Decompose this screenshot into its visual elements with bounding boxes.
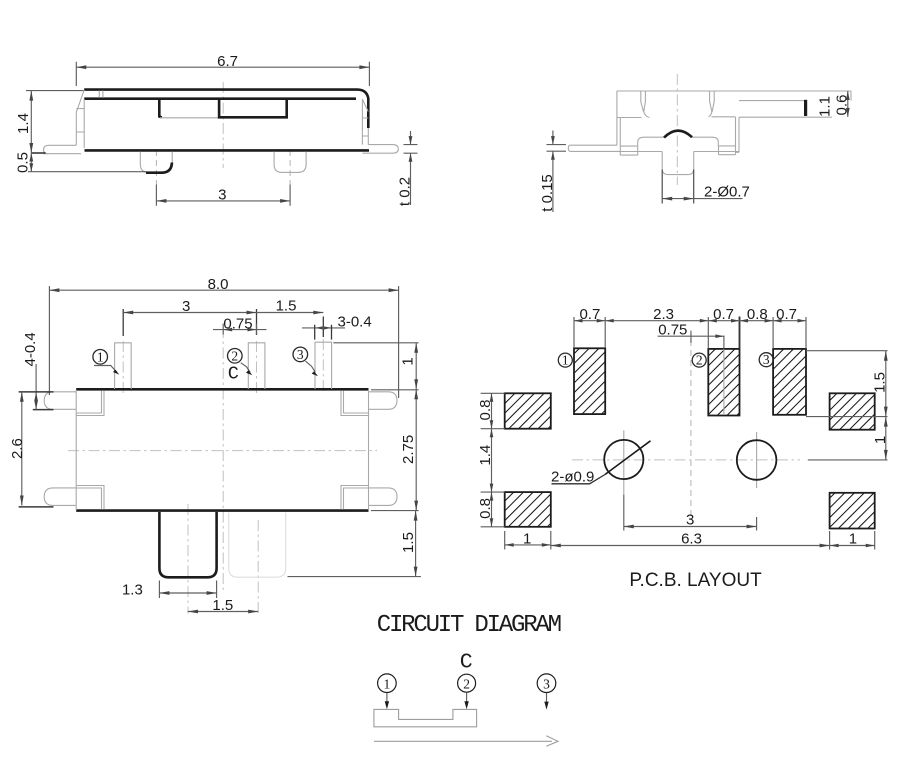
svg-text:C: C bbox=[460, 651, 473, 675]
svg-text:2: 2 bbox=[696, 353, 703, 368]
svg-text:1.1: 1.1 bbox=[817, 96, 834, 117]
svg-text:0.7: 0.7 bbox=[579, 306, 600, 323]
svg-text:2: 2 bbox=[231, 348, 238, 363]
svg-text:1.4: 1.4 bbox=[15, 113, 32, 134]
svg-text:2.3: 2.3 bbox=[653, 306, 674, 323]
svg-text:1.4: 1.4 bbox=[477, 445, 494, 466]
svg-text:1.3: 1.3 bbox=[122, 582, 143, 599]
svg-text:1: 1 bbox=[384, 677, 391, 692]
svg-text:0.7: 0.7 bbox=[776, 306, 797, 323]
svg-text:2.6: 2.6 bbox=[9, 438, 26, 459]
svg-text:CIRCUIT DIAGRAM: CIRCUIT DIAGRAM bbox=[377, 612, 561, 639]
svg-text:3-0.4: 3-0.4 bbox=[338, 314, 372, 331]
svg-text:P.C.B. LAYOUT: P.C.B. LAYOUT bbox=[629, 570, 762, 591]
svg-text:2-Ø0.7: 2-Ø0.7 bbox=[704, 184, 750, 201]
svg-text:0.6: 0.6 bbox=[834, 95, 851, 116]
svg-text:t 0.15: t 0.15 bbox=[539, 174, 556, 212]
svg-text:3: 3 bbox=[686, 512, 694, 529]
svg-text:1.5: 1.5 bbox=[276, 298, 297, 315]
svg-text:8.0: 8.0 bbox=[208, 276, 229, 293]
svg-text:1: 1 bbox=[872, 436, 889, 444]
svg-text:3: 3 bbox=[182, 298, 190, 315]
svg-text:2: 2 bbox=[463, 677, 470, 692]
svg-text:1: 1 bbox=[400, 357, 417, 365]
svg-text:6.7: 6.7 bbox=[217, 53, 238, 70]
svg-text:3: 3 bbox=[218, 187, 226, 204]
svg-text:0.7: 0.7 bbox=[713, 306, 734, 323]
svg-text:1.5: 1.5 bbox=[871, 372, 888, 393]
svg-text:1.5: 1.5 bbox=[212, 597, 233, 614]
svg-text:0.8: 0.8 bbox=[747, 306, 768, 323]
svg-text:t 0.2: t 0.2 bbox=[397, 177, 414, 206]
svg-text:1.5: 1.5 bbox=[400, 532, 417, 553]
svg-text:0.75: 0.75 bbox=[658, 321, 687, 338]
svg-text:3: 3 bbox=[543, 677, 550, 692]
svg-text:1: 1 bbox=[562, 353, 569, 368]
svg-text:1: 1 bbox=[849, 531, 857, 548]
svg-text:4-0.4: 4-0.4 bbox=[22, 332, 39, 366]
svg-text:0.75: 0.75 bbox=[223, 315, 252, 332]
svg-text:0.5: 0.5 bbox=[15, 152, 32, 173]
svg-text:0.8: 0.8 bbox=[477, 498, 494, 519]
svg-text:3: 3 bbox=[763, 352, 770, 367]
svg-text:3: 3 bbox=[297, 347, 304, 362]
svg-text:0.8: 0.8 bbox=[477, 400, 494, 421]
svg-text:C: C bbox=[228, 363, 239, 384]
svg-text:1: 1 bbox=[523, 530, 531, 547]
svg-text:6.3: 6.3 bbox=[681, 531, 702, 548]
svg-text:2.75: 2.75 bbox=[400, 435, 417, 464]
svg-text:1: 1 bbox=[97, 349, 104, 364]
svg-text:2-ø0.9: 2-ø0.9 bbox=[551, 469, 594, 486]
